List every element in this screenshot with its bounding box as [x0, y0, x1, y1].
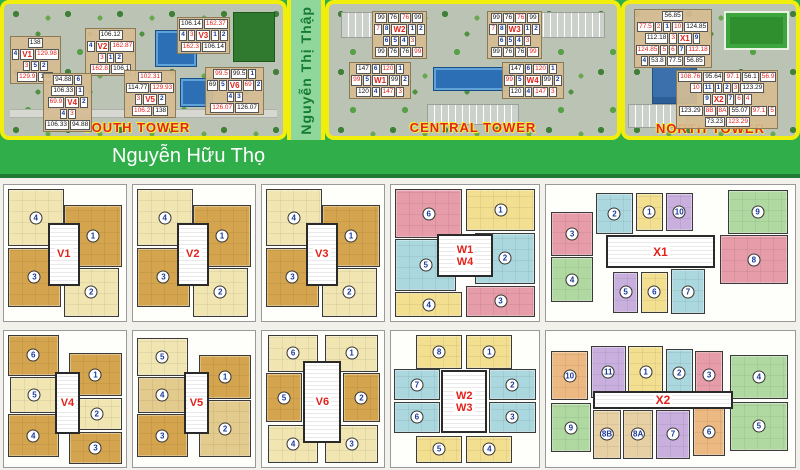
unit-number-badge: 2 [214, 286, 227, 299]
area-label: 129.98 [35, 49, 59, 60]
unit-number: 5 [219, 80, 227, 91]
unit-number: 1 [715, 83, 723, 93]
unit-number: 8 [498, 24, 506, 35]
building-code: V3 [196, 30, 210, 41]
floor-plan-panel-x1: 34211095678X1 [545, 184, 796, 322]
area-label: 5 [660, 45, 668, 55]
unit-number: 4 [227, 92, 235, 102]
floor-plan-panel-v1: 4132V1 [3, 184, 127, 322]
unit-number-badge: 3 [286, 271, 299, 284]
floor-plan-panel-w1w4: 615243W1W4 [390, 184, 540, 322]
site-map-section: SOUTH TOWER 1384V1129.98352129.9138106.1… [0, 0, 800, 178]
area-label: 138 [153, 106, 168, 116]
unit-number-badge: 11 [602, 365, 615, 378]
unit-number: 1 [76, 86, 84, 96]
area-label: 7 [374, 24, 382, 35]
building-code: W4 [525, 75, 541, 86]
area-label: 162.87 [110, 41, 134, 52]
building-code-label: W3 [454, 402, 475, 414]
apartment-unit-5: 5 [416, 436, 462, 463]
apartment-unit-4: 4 [466, 436, 512, 463]
apartment-unit-7: 7 [671, 269, 706, 314]
apartment-unit-3: 3 [466, 286, 534, 317]
unit-number: 2 [80, 97, 88, 108]
area-label: 162.3 [181, 42, 201, 52]
unit-number: 4 [641, 56, 649, 66]
apartment-unit-8: 8 [720, 235, 787, 284]
parking-lot [536, 12, 605, 38]
area-label: 94.88 [70, 120, 90, 130]
unit-number-badge: 4 [158, 211, 171, 224]
unit-number-badge: 9 [751, 206, 764, 219]
unit-number: 6 [383, 36, 391, 46]
unit-number-badge: 2 [506, 378, 519, 391]
unit-number-badge: 3 [703, 368, 716, 381]
area-label: 94.88 [53, 75, 73, 85]
area-label: 69 [207, 80, 218, 91]
area-label: 106.14 [202, 42, 226, 52]
unit-number: 9 [693, 33, 701, 44]
area-label: 56.85 [662, 11, 682, 21]
area-label: 76 [503, 13, 514, 23]
unit-number: 2 [115, 53, 123, 63]
site-building-v3: 106.14162.3743V312162.3106.14 [177, 17, 230, 54]
area-label: 5 [768, 106, 776, 116]
area-label: 123.29 [740, 83, 764, 93]
unit-number: 6 [372, 64, 380, 74]
sports-field [724, 11, 789, 51]
unit-number: 6 [74, 75, 82, 85]
apartment-unit-4: 4 [730, 355, 787, 399]
area-label: 76 [515, 13, 526, 23]
building-code: W3 [507, 24, 523, 35]
unit-number-badge: 4 [287, 437, 300, 450]
area-label: 99.5 [213, 69, 230, 79]
area-label: 99 [542, 75, 553, 86]
unit-number: 7 [678, 45, 686, 55]
unit-number-badge: 3 [156, 429, 169, 442]
unit-number-badge: 7 [666, 428, 679, 441]
unit-number: 5 [507, 36, 515, 46]
area-label: 99 [504, 75, 515, 86]
south-tower-label: SOUTH TOWER [82, 120, 190, 135]
area-label: 99 [412, 47, 423, 57]
area-label: 76 [388, 13, 399, 23]
area-label: 129.9 [17, 72, 37, 82]
unit-number-badge: 1 [643, 206, 656, 219]
building-core: W1W4 [437, 234, 493, 278]
street-horizontal-label: Nguyễn Hữu Thọ [112, 145, 265, 168]
apartment-unit-3: 3 [551, 212, 593, 256]
unit-number-badge: 4 [422, 298, 435, 311]
building-code-label: X2 [654, 394, 673, 406]
apartment-unit-1: 1 [466, 335, 512, 369]
building-core: V2 [177, 223, 209, 286]
building-core: V1 [48, 223, 80, 286]
site-building-v6: 99.599.51695V669243126.07126.07 [205, 67, 265, 115]
building-code: V6 [228, 80, 242, 91]
unit-number: 4 [515, 36, 523, 46]
street-nguyen-huu-tho: Nguyễn Hữu Thọ [0, 140, 800, 174]
area-label: 120 [381, 64, 396, 74]
area-label: 99 [351, 75, 362, 86]
unit-number: 2 [723, 83, 731, 93]
unit-number-badge: 3 [494, 295, 507, 308]
area-label: 10 [690, 83, 701, 93]
area-label: 112.18 [645, 33, 668, 44]
unit-number: 2 [255, 80, 263, 91]
area-label: 3 [549, 87, 557, 97]
building-code-label: V2 [184, 248, 201, 260]
area-label: 77.5 [667, 56, 684, 66]
unit-number: 4 [400, 36, 408, 46]
building-code-label: V4 [59, 397, 76, 409]
apartment-unit-5: 5 [730, 402, 787, 451]
area-label: 106.14 [179, 19, 203, 29]
unit-number: 2 [40, 61, 48, 71]
unit-number: 9 [703, 94, 711, 105]
unit-number-badge: 3 [28, 271, 41, 284]
unit-number-badge: 5 [619, 286, 632, 299]
street-vertical-label: Nguyễn Thị Thập [298, 6, 314, 135]
floor-plan-row-1: 4132V14132V24132V3615243W1W434211095678X… [3, 184, 797, 322]
building-code-label: V1 [55, 248, 72, 260]
building-core: W2W3 [441, 370, 487, 433]
area-label: 8A [717, 106, 729, 116]
area-label: 123.29 [679, 106, 703, 116]
apartment-unit-2: 2 [343, 373, 381, 422]
unit-number: 7 [727, 94, 735, 105]
area-label: 123.29 [726, 117, 750, 127]
unit-number: 1 [107, 53, 115, 63]
unit-number-badge: 2 [498, 252, 511, 265]
unit-number: 6 [525, 64, 533, 74]
apartment-unit-5: 5 [137, 338, 188, 376]
unit-number-badge: 8 [747, 253, 760, 266]
unit-number-badge: 8 [433, 346, 446, 359]
unit-number: 4 [179, 30, 187, 41]
unit-number: 2 [417, 24, 425, 35]
unit-number-badge: 1 [219, 371, 232, 384]
unit-number-badge: 5 [752, 420, 765, 433]
area-label: 8B [704, 106, 716, 116]
floor-plan-panel-v6: 615243V6 [261, 330, 385, 468]
unit-number-badge: 2 [608, 207, 621, 220]
site-building-v5: 102.31114.77129.933V52106.2138 [124, 70, 176, 118]
area-label: 99 [389, 75, 400, 86]
street-edge [0, 174, 800, 178]
area-label: 53.8 [649, 56, 666, 66]
unit-number-badge: 4 [27, 429, 40, 442]
unit-number-badge: 3 [157, 271, 170, 284]
area-label: 56.85 [684, 56, 704, 66]
floor-plan-panel-v3: 4132V3 [261, 184, 385, 322]
unit-number: 6 [498, 36, 506, 46]
apartment-unit-9: 9 [551, 403, 591, 452]
unit-number: 1 [248, 69, 256, 79]
site-building-x1: 56.8577.52110124.85112.183X19124.8556711… [634, 9, 712, 68]
unit-number-badge: 1 [345, 347, 358, 360]
unit-number: 5 [516, 75, 524, 86]
unit-number-badge: 7 [410, 378, 423, 391]
area-label: 120 [356, 87, 371, 97]
apartment-unit-6: 6 [395, 189, 462, 238]
unit-number-badge: 4 [483, 443, 496, 456]
unit-number-badge: 10 [563, 369, 576, 382]
building-code-label: W4 [455, 256, 476, 268]
street-nguyen-thi-thap: Nguyễn Thị Thập [287, 0, 325, 140]
unit-number: 11 [703, 83, 714, 93]
area-label: 129.93 [150, 83, 174, 93]
building-code-label: X1 [651, 246, 670, 258]
unit-number-badge: 8A [631, 428, 645, 441]
unit-number: 2 [554, 75, 562, 86]
unit-number: 1 [549, 64, 557, 74]
area-label: 99 [491, 47, 502, 57]
unit-number-badge: 3 [89, 441, 102, 454]
unit-number: 3 [235, 92, 243, 102]
building-core: V5 [184, 372, 208, 435]
site-building-w1: 14761201995W199212041473 [349, 62, 411, 99]
area-label: 162.8 [90, 64, 110, 74]
unit-number: 2 [220, 30, 228, 41]
area-label: 3 [135, 94, 143, 105]
unit-number: 2 [532, 24, 540, 35]
building-code: V2 [96, 41, 110, 52]
unit-number-badge: 5 [433, 443, 446, 456]
area-label: 10 [672, 22, 683, 32]
unit-number-badge: 7 [681, 285, 694, 298]
area-label: 56.9 [760, 72, 777, 82]
area-label: 76 [400, 47, 411, 57]
site-building-x2: 108.7695.6497.156.156.91011123123.299X27… [676, 70, 778, 129]
unit-number-badge: 9 [564, 421, 577, 434]
building-core: V4 [55, 372, 79, 435]
unit-number-badge: 6 [410, 411, 423, 424]
building-code-label: V3 [313, 248, 330, 260]
area-label: 3 [409, 36, 417, 46]
site-building-w4: 14761201995W499212041473 [502, 62, 564, 99]
floor-plans-section: 4132V14132V24132V3615243W1W434211095678X… [0, 178, 800, 470]
apartment-unit-10: 10 [551, 351, 588, 400]
unit-number-badge: 1 [87, 229, 100, 242]
floor-plan-panel-w2w3: 81726354W2W3 [390, 330, 540, 468]
area-label: 120 [533, 64, 548, 74]
area-label: 106.33 [45, 120, 69, 130]
area-label: 95.64 [703, 72, 723, 82]
area-label: 147 [509, 64, 524, 74]
building-core: V3 [306, 223, 338, 286]
unit-number: 1 [211, 30, 219, 41]
apartment-unit-1: 1 [466, 189, 534, 231]
unit-number-badge: 3 [345, 437, 358, 450]
area-label: 124.85 [636, 45, 660, 55]
area-label: 99 [375, 13, 386, 23]
area-label: 3 [732, 83, 740, 93]
area-label: 147 [356, 64, 371, 74]
area-label: 126.07 [210, 103, 234, 113]
area-label: 99 [375, 47, 386, 57]
apartment-unit-8a: 8A [623, 410, 653, 459]
area-label: 106.12 [99, 30, 123, 40]
area-label: 3 [23, 61, 31, 71]
unit-number-badge: 6 [422, 207, 435, 220]
apartment-unit-3: 3 [69, 432, 123, 465]
building-core: X1 [606, 235, 716, 268]
building-core: V6 [303, 361, 341, 443]
unit-number-badge: 1 [216, 229, 229, 242]
area-label: 97.1 [724, 72, 741, 82]
unit-number-badge: 3 [506, 411, 519, 424]
area-label: 97.1 [751, 106, 768, 116]
area-label: 3 [669, 33, 677, 44]
unit-number-badge: 2 [219, 422, 232, 435]
apartment-unit-8: 8 [416, 335, 462, 369]
unit-number-badge: 10 [673, 206, 686, 219]
area-label: 3 [188, 30, 196, 41]
area-label: 3 [396, 87, 404, 97]
area-label: 112.18 [686, 45, 709, 55]
area-label: 162.37 [204, 19, 228, 29]
unit-number-badge: 2 [343, 286, 356, 299]
unit-number-badge: 8B [600, 428, 614, 441]
apartment-unit-6: 6 [693, 407, 725, 456]
area-label: 3 [68, 109, 76, 119]
area-label: 138 [28, 38, 43, 48]
unit-number-badge: 4 [752, 371, 765, 384]
unit-number: 1 [663, 22, 671, 32]
apartment-unit-4: 4 [395, 292, 462, 316]
area-label: 108.76 [678, 72, 702, 82]
apartment-unit-7: 7 [656, 410, 691, 459]
apartment-unit-4: 4 [551, 257, 593, 302]
unit-number-badge: 4 [29, 211, 42, 224]
area-label: 124.85 [684, 22, 708, 32]
unit-number: 4 [12, 49, 20, 60]
building-code: W2 [391, 24, 407, 35]
site-building-v2: 106.124V2162.87312162.8106.1 [85, 28, 136, 76]
unit-number-badge: 5 [28, 388, 41, 401]
unit-number-badge: 6 [703, 425, 716, 438]
apartment-unit-5: 5 [266, 373, 303, 422]
floor-plan-panel-v5: 54312V5 [132, 330, 256, 468]
unit-number: 5 [391, 36, 399, 46]
apartment-unit-3: 3 [137, 414, 188, 458]
apartment-unit-2: 2 [596, 193, 633, 234]
apartment-unit-6: 6 [641, 272, 668, 313]
area-label: 114.77 [126, 83, 149, 93]
apartment-unit-7: 7 [394, 369, 440, 400]
floor-plan-row-2: 654123V454312V5615243V681726354W2W310111… [3, 330, 797, 468]
building-code: W1 [372, 75, 388, 86]
area-label: 76 [400, 13, 411, 23]
area-label: 106.33 [51, 86, 75, 96]
area-label: 55.07 [729, 106, 749, 116]
site-panel-south-tower: SOUTH TOWER 1384V1129.98352129.9138106.1… [0, 0, 287, 140]
unit-number-badge: 2 [90, 407, 103, 420]
unit-number: 2 [158, 94, 166, 105]
area-label: 147 [533, 87, 548, 97]
building-code: V4 [65, 97, 79, 108]
apartment-unit-9: 9 [728, 190, 788, 234]
area-label: 73.23 [705, 117, 725, 127]
area-label: 69 [243, 80, 254, 91]
area-label: 76 [515, 47, 526, 57]
unit-number: 5 [31, 61, 39, 71]
apartment-unit-8b: 8B [593, 410, 620, 459]
building-code-label: W2 [454, 390, 475, 402]
unit-number-badge: 6 [287, 347, 300, 360]
area-label: 7 [489, 24, 497, 35]
unit-number-badge: 5 [277, 391, 290, 404]
unit-number: 4 [525, 87, 533, 97]
unit-number-badge: 1 [89, 368, 102, 381]
unit-number: 8 [383, 24, 391, 35]
building-core: X2 [593, 391, 732, 409]
unit-number: 4 [372, 87, 380, 97]
area-label: 6 [735, 94, 743, 105]
building-code: V1 [20, 49, 34, 60]
unit-number: 1 [524, 24, 532, 35]
apartment-unit-10: 10 [666, 193, 693, 231]
building-code-label: V5 [188, 397, 205, 409]
area-label: 2 [655, 22, 663, 32]
area-label: 102.31 [138, 72, 162, 82]
central-tower-label: CENTRAL TOWER [410, 120, 537, 135]
area-label: 69.9 [48, 97, 65, 108]
building-code-label: V6 [314, 396, 331, 408]
apartment-unit-6: 6 [8, 335, 59, 376]
area-label: 3 [524, 36, 532, 46]
area-label: 56.1 [742, 72, 759, 82]
building-code: X2 [712, 94, 726, 105]
site-building-w2: 9976769978W212654399767699 [372, 11, 427, 59]
unit-number-badge: 1 [639, 365, 652, 378]
area-label: 126.07 [235, 103, 259, 113]
map-building [233, 12, 275, 62]
unit-number-badge: 6 [27, 349, 40, 362]
unit-number-badge: 3 [566, 227, 579, 240]
apartment-unit-2: 2 [489, 369, 536, 400]
unit-number-badge: 1 [483, 346, 496, 359]
area-label: 77.5 [637, 22, 654, 32]
area-label: 120 [509, 87, 524, 97]
unit-number-badge: 4 [566, 273, 579, 286]
unit-number-badge: 2 [673, 367, 686, 380]
area-label: 6 [669, 45, 677, 55]
unit-number: 4 [87, 41, 95, 52]
apartment-unit-6: 6 [394, 402, 440, 433]
building-code: X1 [678, 33, 692, 44]
area-label: 76 [388, 47, 399, 57]
building-code-label: W1 [455, 244, 476, 256]
unit-number-badge: 2 [355, 391, 368, 404]
building-code: V5 [143, 94, 157, 105]
unit-number: 4 [60, 109, 68, 119]
site-building-w3: 9976769978W312654399767699 [487, 11, 542, 59]
unit-number-badge: 5 [156, 350, 169, 363]
unit-number-badge: 4 [287, 211, 300, 224]
area-label: 4 [744, 94, 752, 105]
floor-plan-panel-v4: 654123V4 [3, 330, 127, 468]
apartment-unit-4: 4 [138, 377, 187, 412]
unit-number-badge: 5 [419, 259, 432, 272]
floor-plan-panel-x2: 1011123498B8A765X2 [545, 330, 796, 468]
area-label: 99 [527, 47, 538, 57]
unit-number: 1 [408, 24, 416, 35]
floor-plan-panel-v2: 4132V2 [132, 184, 256, 322]
area-label: 99 [491, 13, 502, 23]
